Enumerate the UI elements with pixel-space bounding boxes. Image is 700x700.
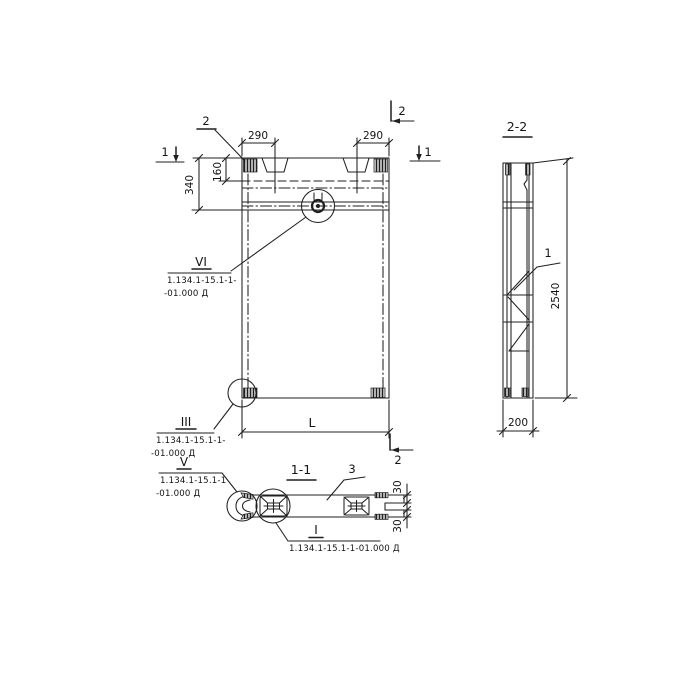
dim-30-top: 30 [392, 480, 404, 493]
dim-200: 200 [508, 417, 528, 429]
elevation-view: 290 290 160 340 L 1 1 2 2 [151, 101, 440, 467]
callout-iii: III 1.134.1-15.1-1- -01.000 Д [151, 415, 226, 459]
callout-v-ref2: -01.000 Д [156, 489, 201, 499]
thickness-dimensions [404, 484, 412, 528]
callout-vi-ref2: -01.000 Д [164, 289, 209, 299]
section-1-1-view: 1-1 3 [156, 455, 411, 554]
part-3-leader: 3 [327, 462, 365, 500]
dim-340: 340 [184, 175, 196, 195]
callout-i: I 1.134.1-15.1-1-01.000 Д [276, 523, 400, 554]
callout-vi-ref1: 1.134.1-15.1-1- [167, 276, 237, 286]
section-2-2-view: 2-2 1 [497, 119, 577, 437]
section-1-1-title: 1-1 [291, 462, 311, 477]
section-2-2-title: 2-2 [507, 119, 527, 134]
anchor-hatch-top-right [374, 159, 388, 172]
callout-iii-ref1: 1.134.1-15.1-1- [156, 436, 226, 446]
callout-v-num: V [180, 455, 189, 469]
leader-2-label: 2 [202, 114, 209, 128]
bar-geometry [227, 489, 404, 523]
section-marker-1-left: 1 [156, 145, 184, 162]
dim-290-right: 290 [363, 130, 383, 142]
part-3-label: 3 [348, 462, 355, 476]
side-profile-geometry [503, 163, 533, 398]
section-marker-1-right: 1 [410, 145, 440, 161]
side-hatch-bottom-right [522, 388, 528, 397]
leader-marker-2: 2 [197, 114, 245, 161]
callout-vi: VI 1.134.1-15.1-1- -01.000 Д [164, 255, 237, 299]
dim-2540: 2540 [550, 283, 562, 310]
panel-geometry [242, 138, 389, 398]
bar-hatch-right-top [375, 493, 388, 498]
anchor-hatch-bottom-left [244, 388, 258, 398]
section-marker-2-bottom: 2 [390, 434, 413, 467]
dim-length: L [309, 415, 316, 430]
dim-160: 160 [212, 162, 224, 182]
side-hatch-top-left [506, 164, 511, 175]
callout-iii-num: III [181, 415, 192, 429]
anchor-hatch-top-left [244, 159, 258, 172]
section-marker-2-top: 2 [391, 101, 414, 124]
marker-1-left-label: 1 [161, 145, 168, 159]
dim-30-bottom: 30 [392, 519, 404, 532]
callout-v: V 1.134.1-15.1-1 -01.000 Д [156, 455, 237, 499]
marker-1-right-label: 1 [424, 145, 431, 159]
anchor-hatch-bottom-right [371, 388, 385, 398]
part-1-label: 1 [544, 246, 551, 260]
callout-i-ref: 1.134.1-15.1-1-01.000 Д [289, 544, 400, 554]
side-hatch-top-right [526, 164, 531, 175]
callout-vi-num: VI [195, 255, 207, 269]
side-hatch-bottom-left [505, 388, 511, 397]
dim-290-left: 290 [248, 130, 268, 142]
technical-drawing: 290 290 160 340 L 1 1 2 2 [0, 0, 700, 700]
callout-v-ref1: 1.134.1-15.1-1 [160, 476, 226, 486]
callout-i-num: I [314, 523, 318, 537]
bottom-corner-detail [214, 379, 256, 429]
marker-2-top-label: 2 [398, 104, 405, 118]
callout-iii-ref2: -01.000 Д [151, 449, 196, 459]
marker-2-bottom-label: 2 [394, 453, 401, 467]
bar-hatch-right-bottom [375, 514, 388, 519]
